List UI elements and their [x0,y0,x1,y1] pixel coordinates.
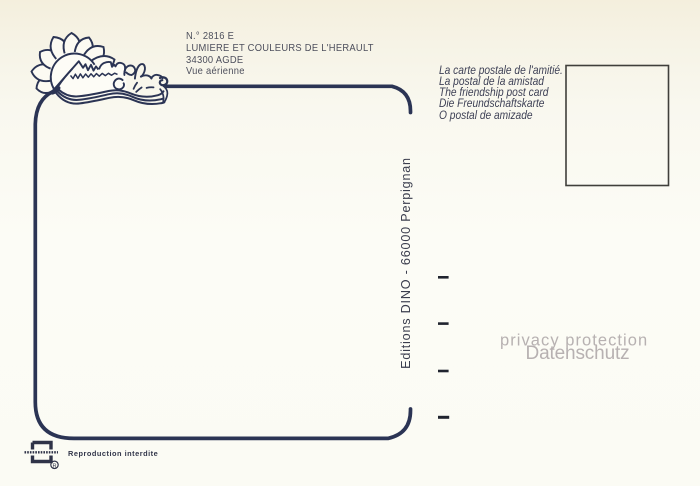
svg-text:Datenschutz: Datenschutz [526,343,630,364]
svg-text:R: R [52,463,56,469]
